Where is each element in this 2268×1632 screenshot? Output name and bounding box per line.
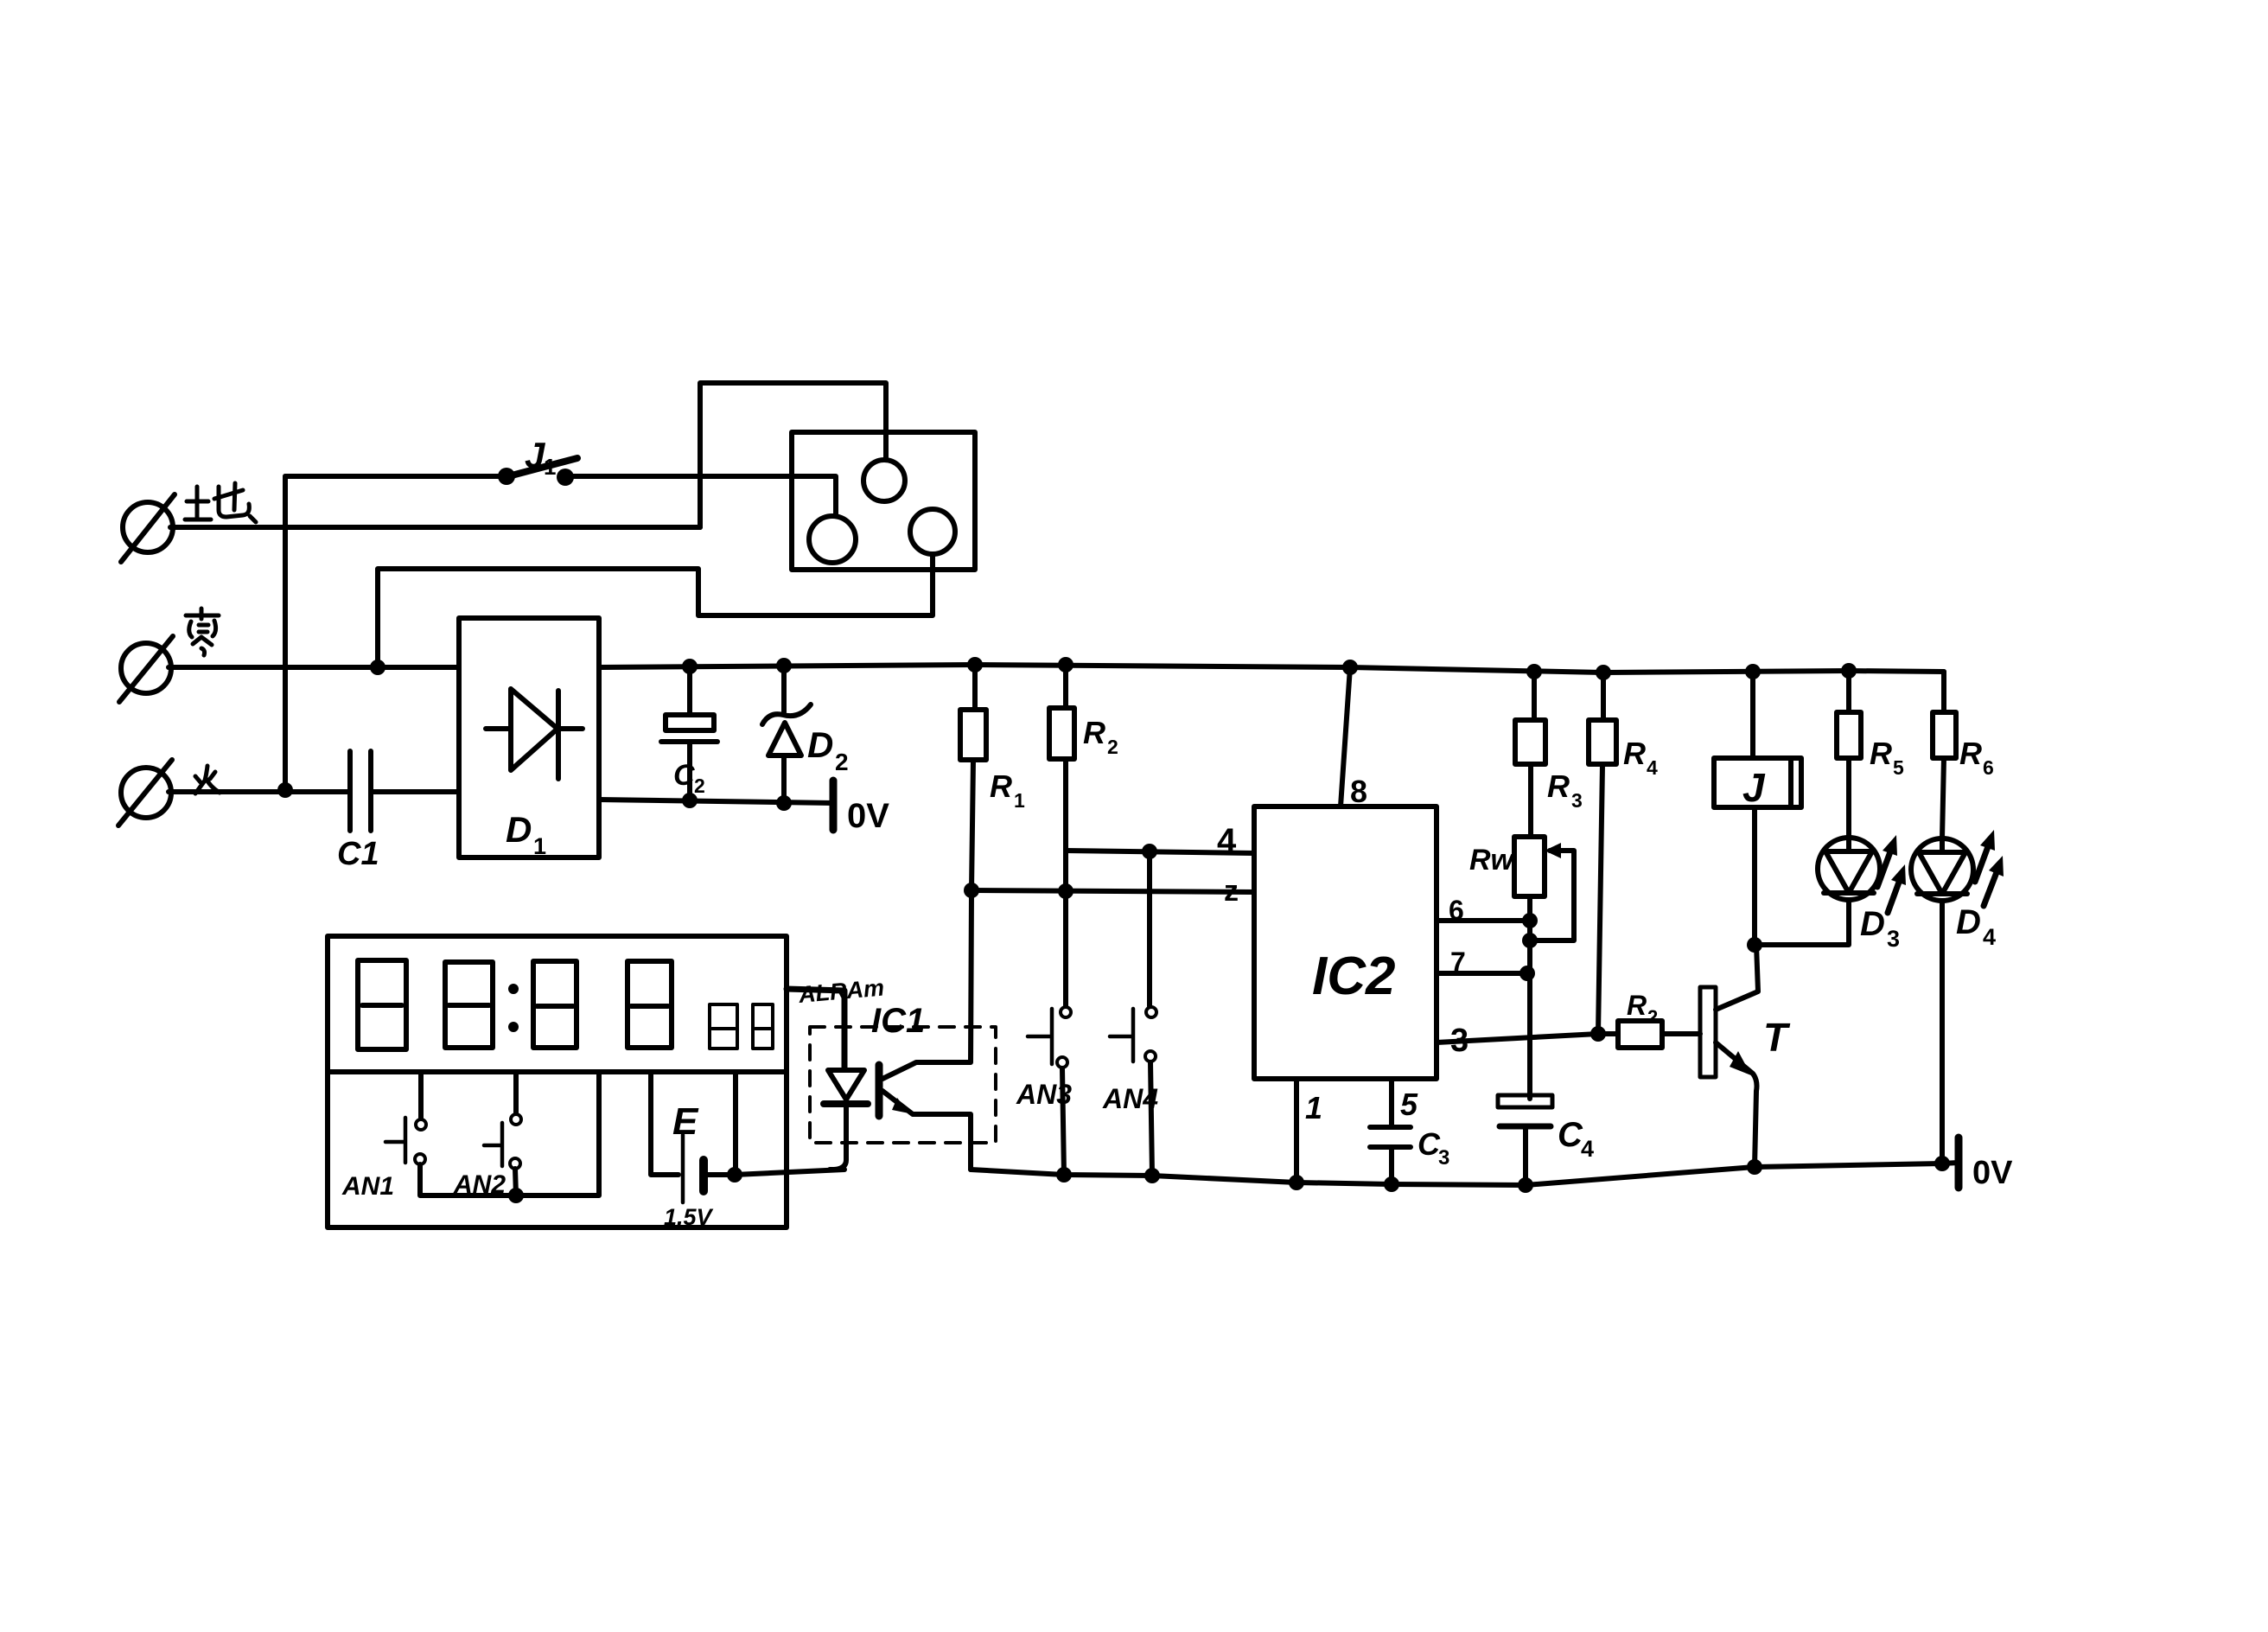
svg-text:AN1: AN1 xyxy=(341,1172,394,1201)
svg-text:3: 3 xyxy=(1450,1023,1468,1059)
svg-text:IC1: IC1 xyxy=(871,1002,925,1040)
svg-text:D: D xyxy=(506,809,532,850)
svg-text:5: 5 xyxy=(1400,1087,1418,1122)
svg-text:6: 6 xyxy=(1449,895,1464,926)
svg-text:3: 3 xyxy=(1887,926,1900,952)
svg-text:E: E xyxy=(672,1100,699,1143)
svg-text:D: D xyxy=(1860,905,1885,943)
svg-text:T: T xyxy=(1763,1015,1791,1060)
svg-text:1: 1 xyxy=(544,454,556,480)
svg-text:1: 1 xyxy=(1305,1090,1322,1125)
svg-text:6: 6 xyxy=(1983,756,1994,779)
svg-text:4: 4 xyxy=(1217,822,1237,860)
svg-text:4: 4 xyxy=(1983,924,1996,950)
svg-text:8: 8 xyxy=(1350,774,1367,809)
svg-text:1.5V: 1.5V xyxy=(664,1204,714,1230)
svg-text:4: 4 xyxy=(1647,756,1658,779)
svg-text:z: z xyxy=(1224,875,1239,908)
svg-text:0V: 0V xyxy=(847,797,889,835)
svg-text:R: R xyxy=(990,768,1012,804)
svg-text:5: 5 xyxy=(1893,756,1904,779)
svg-text:C: C xyxy=(673,759,695,792)
svg-text:D: D xyxy=(1956,903,1981,941)
svg-text:AN3: AN3 xyxy=(1016,1079,1072,1110)
svg-text:IC2: IC2 xyxy=(1312,947,1395,1006)
svg-text:Rw: Rw xyxy=(1469,844,1516,877)
svg-text:C1: C1 xyxy=(337,836,379,872)
svg-text:7: 7 xyxy=(1450,947,1466,978)
svg-text:R: R xyxy=(1627,990,1647,1021)
svg-text:J: J xyxy=(1742,765,1766,810)
svg-text:D: D xyxy=(807,724,833,765)
svg-text:AN2: AN2 xyxy=(453,1170,506,1199)
svg-text:R: R xyxy=(1870,736,1892,771)
svg-text:1: 1 xyxy=(533,833,546,859)
svg-text:0V: 0V xyxy=(1972,1155,2013,1191)
svg-text:4: 4 xyxy=(1581,1136,1594,1162)
svg-text:2: 2 xyxy=(835,749,849,775)
svg-text:3: 3 xyxy=(1438,1146,1449,1170)
svg-text:R: R xyxy=(1623,736,1646,771)
svg-text:2: 2 xyxy=(1107,736,1118,758)
svg-text:3: 3 xyxy=(1571,789,1583,812)
svg-text:R: R xyxy=(1547,768,1570,804)
svg-text:2: 2 xyxy=(1647,1006,1658,1028)
svg-text:C: C xyxy=(1417,1126,1441,1162)
svg-text:1: 1 xyxy=(1014,789,1025,812)
svg-text:2: 2 xyxy=(694,775,705,797)
svg-text:AN4: AN4 xyxy=(1102,1083,1158,1114)
svg-text:R: R xyxy=(1959,736,1982,771)
svg-text:C: C xyxy=(1558,1116,1583,1154)
svg-text:R: R xyxy=(1083,715,1105,750)
